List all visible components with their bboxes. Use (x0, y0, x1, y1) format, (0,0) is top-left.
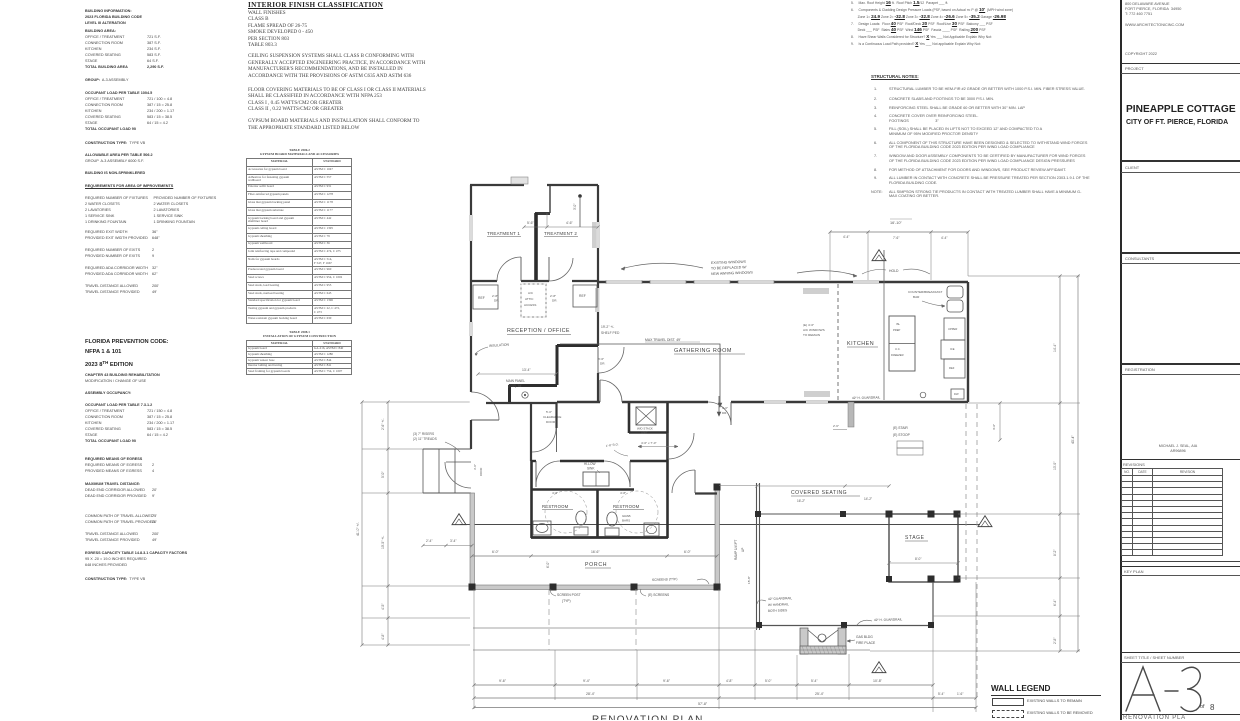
svg-text:4'-8": 4'-8" (726, 679, 733, 683)
svg-text:COVERED SEATING: COVERED SEATING (791, 490, 847, 496)
svg-text:SCREEN POST: SCREEN POST (557, 593, 581, 597)
svg-text:16'-6": 16'-6" (591, 550, 600, 554)
svg-text:INSULATION: INSULATION (489, 343, 510, 348)
svg-text:13'-0": 13'-0" (1053, 461, 1057, 470)
svg-text:REF: REF (949, 366, 955, 370)
svg-text:8'-0": 8'-0" (915, 557, 922, 561)
svg-text:DR.: DR. (722, 411, 727, 415)
svg-text:BOTH SIDES: BOTH SIDES (768, 608, 787, 613)
svg-text:UPPER: UPPER (948, 327, 957, 331)
svg-text:BARS: BARS (622, 519, 630, 523)
svg-text:(E) STAIR: (E) STAIR (893, 426, 908, 430)
svg-text:KITCHEN: KITCHEN (847, 341, 874, 347)
svg-text:3'-0": 3'-0" (473, 464, 477, 470)
svg-text:13'-4": 13'-4" (522, 368, 531, 372)
svg-text:6'-0": 6'-0" (684, 550, 692, 554)
svg-text:15'-8": 15'-8" (747, 576, 751, 584)
svg-text:9'-6": 9'-6" (499, 679, 507, 683)
svg-text:42" GUARDRAIL: 42" GUARDRAIL (768, 596, 793, 601)
svg-text:4'-5": 4'-5" (381, 603, 385, 610)
svg-text:EXISTING WINDOWS: EXISTING WINDOWS (711, 260, 747, 265)
svg-text:NEW AWNING WINDOWS: NEW AWNING WINDOWS (711, 271, 754, 276)
svg-text:4'-6": 4'-6" (566, 221, 574, 225)
svg-text:9'-4": 9'-4" (583, 679, 591, 683)
svg-text:(TYP): (TYP) (562, 599, 571, 603)
svg-text:9'-6": 9'-6" (663, 679, 671, 683)
svg-text:RESTROOM: RESTROOM (613, 504, 640, 509)
svg-text:DW: DW (954, 392, 959, 396)
svg-text:of: of (1200, 704, 1205, 710)
svg-text:UP: UP (741, 548, 745, 552)
svg-text:(3) 7" RISERS: (3) 7" RISERS (413, 432, 435, 436)
svg-text:42" H. GUARDRAIL: 42" H. GUARDRAIL (852, 396, 881, 400)
svg-text:STAGE: STAGE (905, 535, 925, 541)
svg-text:8: 8 (1210, 703, 1215, 712)
svg-text:(E) STOOP: (E) STOOP (893, 433, 911, 437)
svg-text:(TYP) '94': (TYP) '94' (508, 384, 522, 388)
svg-text:42" H. GUARDRAIL: 42" H. GUARDRAIL (874, 618, 903, 622)
svg-text:2'-8": 2'-8" (492, 294, 498, 298)
svg-text:U.C.: U.C. (895, 347, 901, 351)
svg-text:4'-0" x 7'-0": 4'-0" x 7'-0" (641, 441, 657, 445)
svg-text:TREATMENT 2: TREATMENT 2 (544, 231, 577, 236)
svg-text:CLEARANCE: CLEARANCE (543, 415, 561, 419)
svg-text:4'-4": 4'-4" (843, 235, 849, 239)
svg-text:DOOR: DOOR (479, 468, 483, 476)
svg-text:43'-4": 43'-4" (1071, 435, 1075, 444)
svg-text:10'-5" +/-: 10'-5" +/- (381, 536, 385, 549)
svg-text:PREP: PREP (893, 328, 901, 332)
svg-text:(2) 11" TREADS: (2) 11" TREADS (413, 437, 438, 441)
svg-text:19'-2" +/-: 19'-2" +/- (601, 325, 614, 329)
svg-text:57'-8": 57'-8" (698, 702, 708, 706)
svg-text:RESTROOM: RESTROOM (542, 504, 569, 509)
svg-text:5'-0": 5'-0" (546, 410, 552, 414)
svg-text:FIRE PLACE: FIRE PLACE (856, 641, 876, 645)
svg-text:1'-6": 1'-6" (957, 692, 963, 696)
svg-text:7'-6": 7'-6" (893, 236, 899, 240)
svg-text:41'-0" +/-: 41'-0" +/- (356, 522, 360, 536)
svg-text:5'-6": 5'-6" (527, 221, 535, 225)
svg-text:ACCESS: ACCESS (524, 303, 536, 307)
svg-text:MAIN PANEL: MAIN PANEL (506, 379, 525, 383)
svg-text:6'-0": 6'-0" (492, 550, 500, 554)
svg-text:28'-4": 28'-4" (586, 692, 596, 696)
svg-text:2'-6" +/-: 2'-6" +/- (381, 419, 385, 430)
svg-text:HOLD: HOLD (889, 269, 899, 273)
svg-text:PORCH: PORCH (585, 562, 607, 568)
svg-text:5'-4": 5'-4" (811, 679, 818, 683)
svg-text:HI-LOW: HI-LOW (584, 462, 596, 466)
svg-text:6'-4": 6'-4" (1053, 599, 1057, 606)
svg-text:6'-0": 6'-0" (546, 562, 550, 568)
svg-text:1'-6" R.O.: 1'-6" R.O. (606, 442, 620, 448)
svg-text:TREATMENT 1: TREATMENT 1 (487, 231, 520, 236)
svg-text:RENOVATION PLAN: RENOVATION PLAN (592, 715, 704, 721)
svg-text:SINK: SINK (587, 467, 595, 471)
svg-text:REF: REF (478, 296, 485, 300)
svg-text:W/ HANDRAIL: W/ HANDRAIL (768, 602, 789, 607)
svg-text:UNIT: UNIT (641, 431, 648, 435)
svg-text:25'-4": 25'-4" (815, 692, 825, 696)
svg-text:ICE: ICE (950, 347, 955, 351)
svg-text:2'-8": 2'-8" (550, 294, 556, 298)
svg-text:(E) SCREENS: (E) SCREENS (648, 593, 670, 597)
svg-text:DR.: DR. (494, 299, 499, 303)
svg-text:5'-0": 5'-0" (765, 679, 772, 683)
svg-text:RAMP 1/4"/FT: RAMP 1/4"/FT (734, 540, 738, 560)
svg-text:3'-0": 3'-0" (573, 204, 577, 210)
svg-text:5'-0": 5'-0" (381, 471, 385, 478)
svg-text:8'-2": 8'-2" (1053, 549, 1057, 556)
svg-text:3'-4": 3'-4" (450, 539, 457, 543)
svg-text:ISL: ISL (896, 322, 901, 326)
svg-text:16'-2": 16'-2" (797, 499, 805, 503)
svg-text:A/C WINDOWS: A/C WINDOWS (803, 328, 825, 332)
svg-text:REF: REF (579, 294, 586, 298)
svg-text:FREEZER: FREEZER (891, 353, 904, 357)
svg-text:4'-8": 4'-8" (620, 491, 626, 495)
svg-text:DOOR: DOOR (546, 420, 556, 424)
svg-text:(E) 4'-0": (E) 4'-0" (803, 323, 814, 327)
svg-text:5'-4": 5'-4" (938, 692, 944, 696)
svg-text:DR.: DR. (600, 362, 605, 366)
svg-text:COUNTER/BREAKFAST: COUNTER/BREAKFAST (908, 290, 942, 294)
svg-text:ATTIC: ATTIC (525, 297, 534, 301)
svg-text:4'-8": 4'-8" (381, 633, 385, 640)
svg-text:DR.: DR. (552, 299, 557, 303)
svg-text:BAR: BAR (913, 295, 920, 299)
svg-text:2'-8": 2'-8" (1053, 637, 1057, 644)
svg-text:A/C: A/C (528, 291, 534, 295)
svg-text:16'-10": 16'-10" (890, 221, 902, 225)
svg-text:GATHERING ROOM: GATHERING ROOM (674, 348, 732, 354)
svg-text:2'-6": 2'-6" (833, 424, 839, 428)
svg-text:GRAB: GRAB (622, 514, 631, 518)
svg-text:GAS BLDG: GAS BLDG (856, 635, 873, 639)
svg-text:10'-8": 10'-8" (873, 679, 883, 683)
svg-text:TO BE REPLACED W/: TO BE REPLACED W/ (711, 265, 747, 270)
svg-text:3'-0": 3'-0" (722, 406, 728, 410)
svg-text:3'-6": 3'-6" (992, 424, 996, 430)
svg-text:14'-4": 14'-4" (1053, 343, 1057, 352)
svg-text:2'-4": 2'-4" (426, 539, 433, 543)
svg-text:14'-2": 14'-2" (864, 497, 872, 501)
svg-text:RECEPTION / OFFICE: RECEPTION / OFFICE (507, 328, 570, 334)
svg-text:SHELF PED: SHELF PED (601, 331, 620, 335)
svg-text:SCREENS (TYP): SCREENS (TYP) (652, 577, 678, 582)
svg-text:TO REMAIN: TO REMAIN (803, 333, 820, 337)
svg-text:3'-0": 3'-0" (598, 357, 604, 361)
svg-text:MAX TRAVEL DIST. 49': MAX TRAVEL DIST. 49' (645, 338, 681, 342)
svg-text:4'-4": 4'-4" (941, 236, 947, 240)
